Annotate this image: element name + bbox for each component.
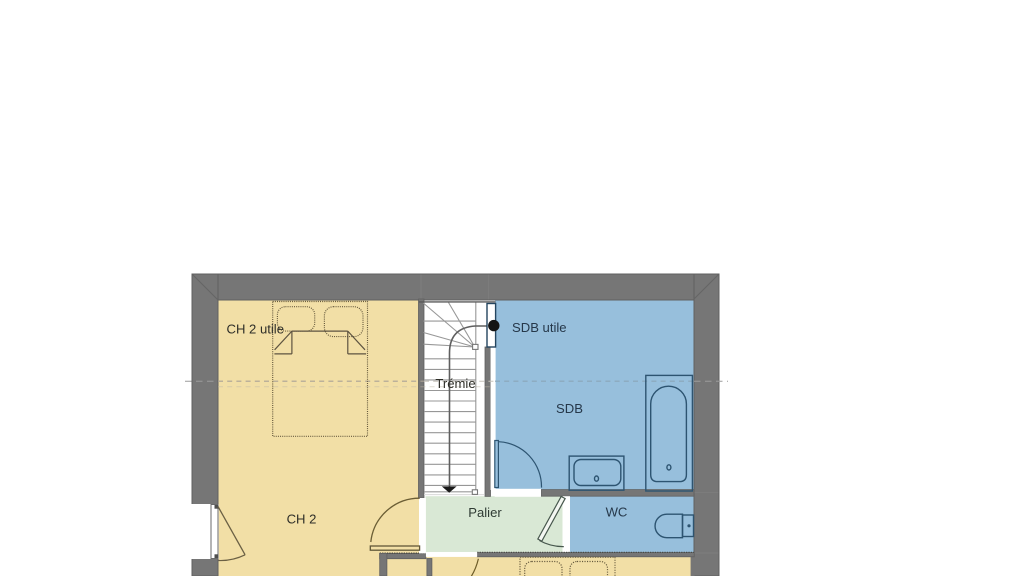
svg-text:WC: WC	[606, 505, 628, 520]
svg-text:SDB utile: SDB utile	[512, 320, 567, 335]
svg-text:Palier: Palier	[468, 505, 502, 520]
svg-text:SDB: SDB	[556, 401, 583, 416]
svg-text:Trémie: Trémie	[435, 376, 475, 391]
svg-text:CH 2 utile: CH 2 utile	[227, 322, 285, 337]
svg-text:CH 2: CH 2	[287, 511, 317, 526]
